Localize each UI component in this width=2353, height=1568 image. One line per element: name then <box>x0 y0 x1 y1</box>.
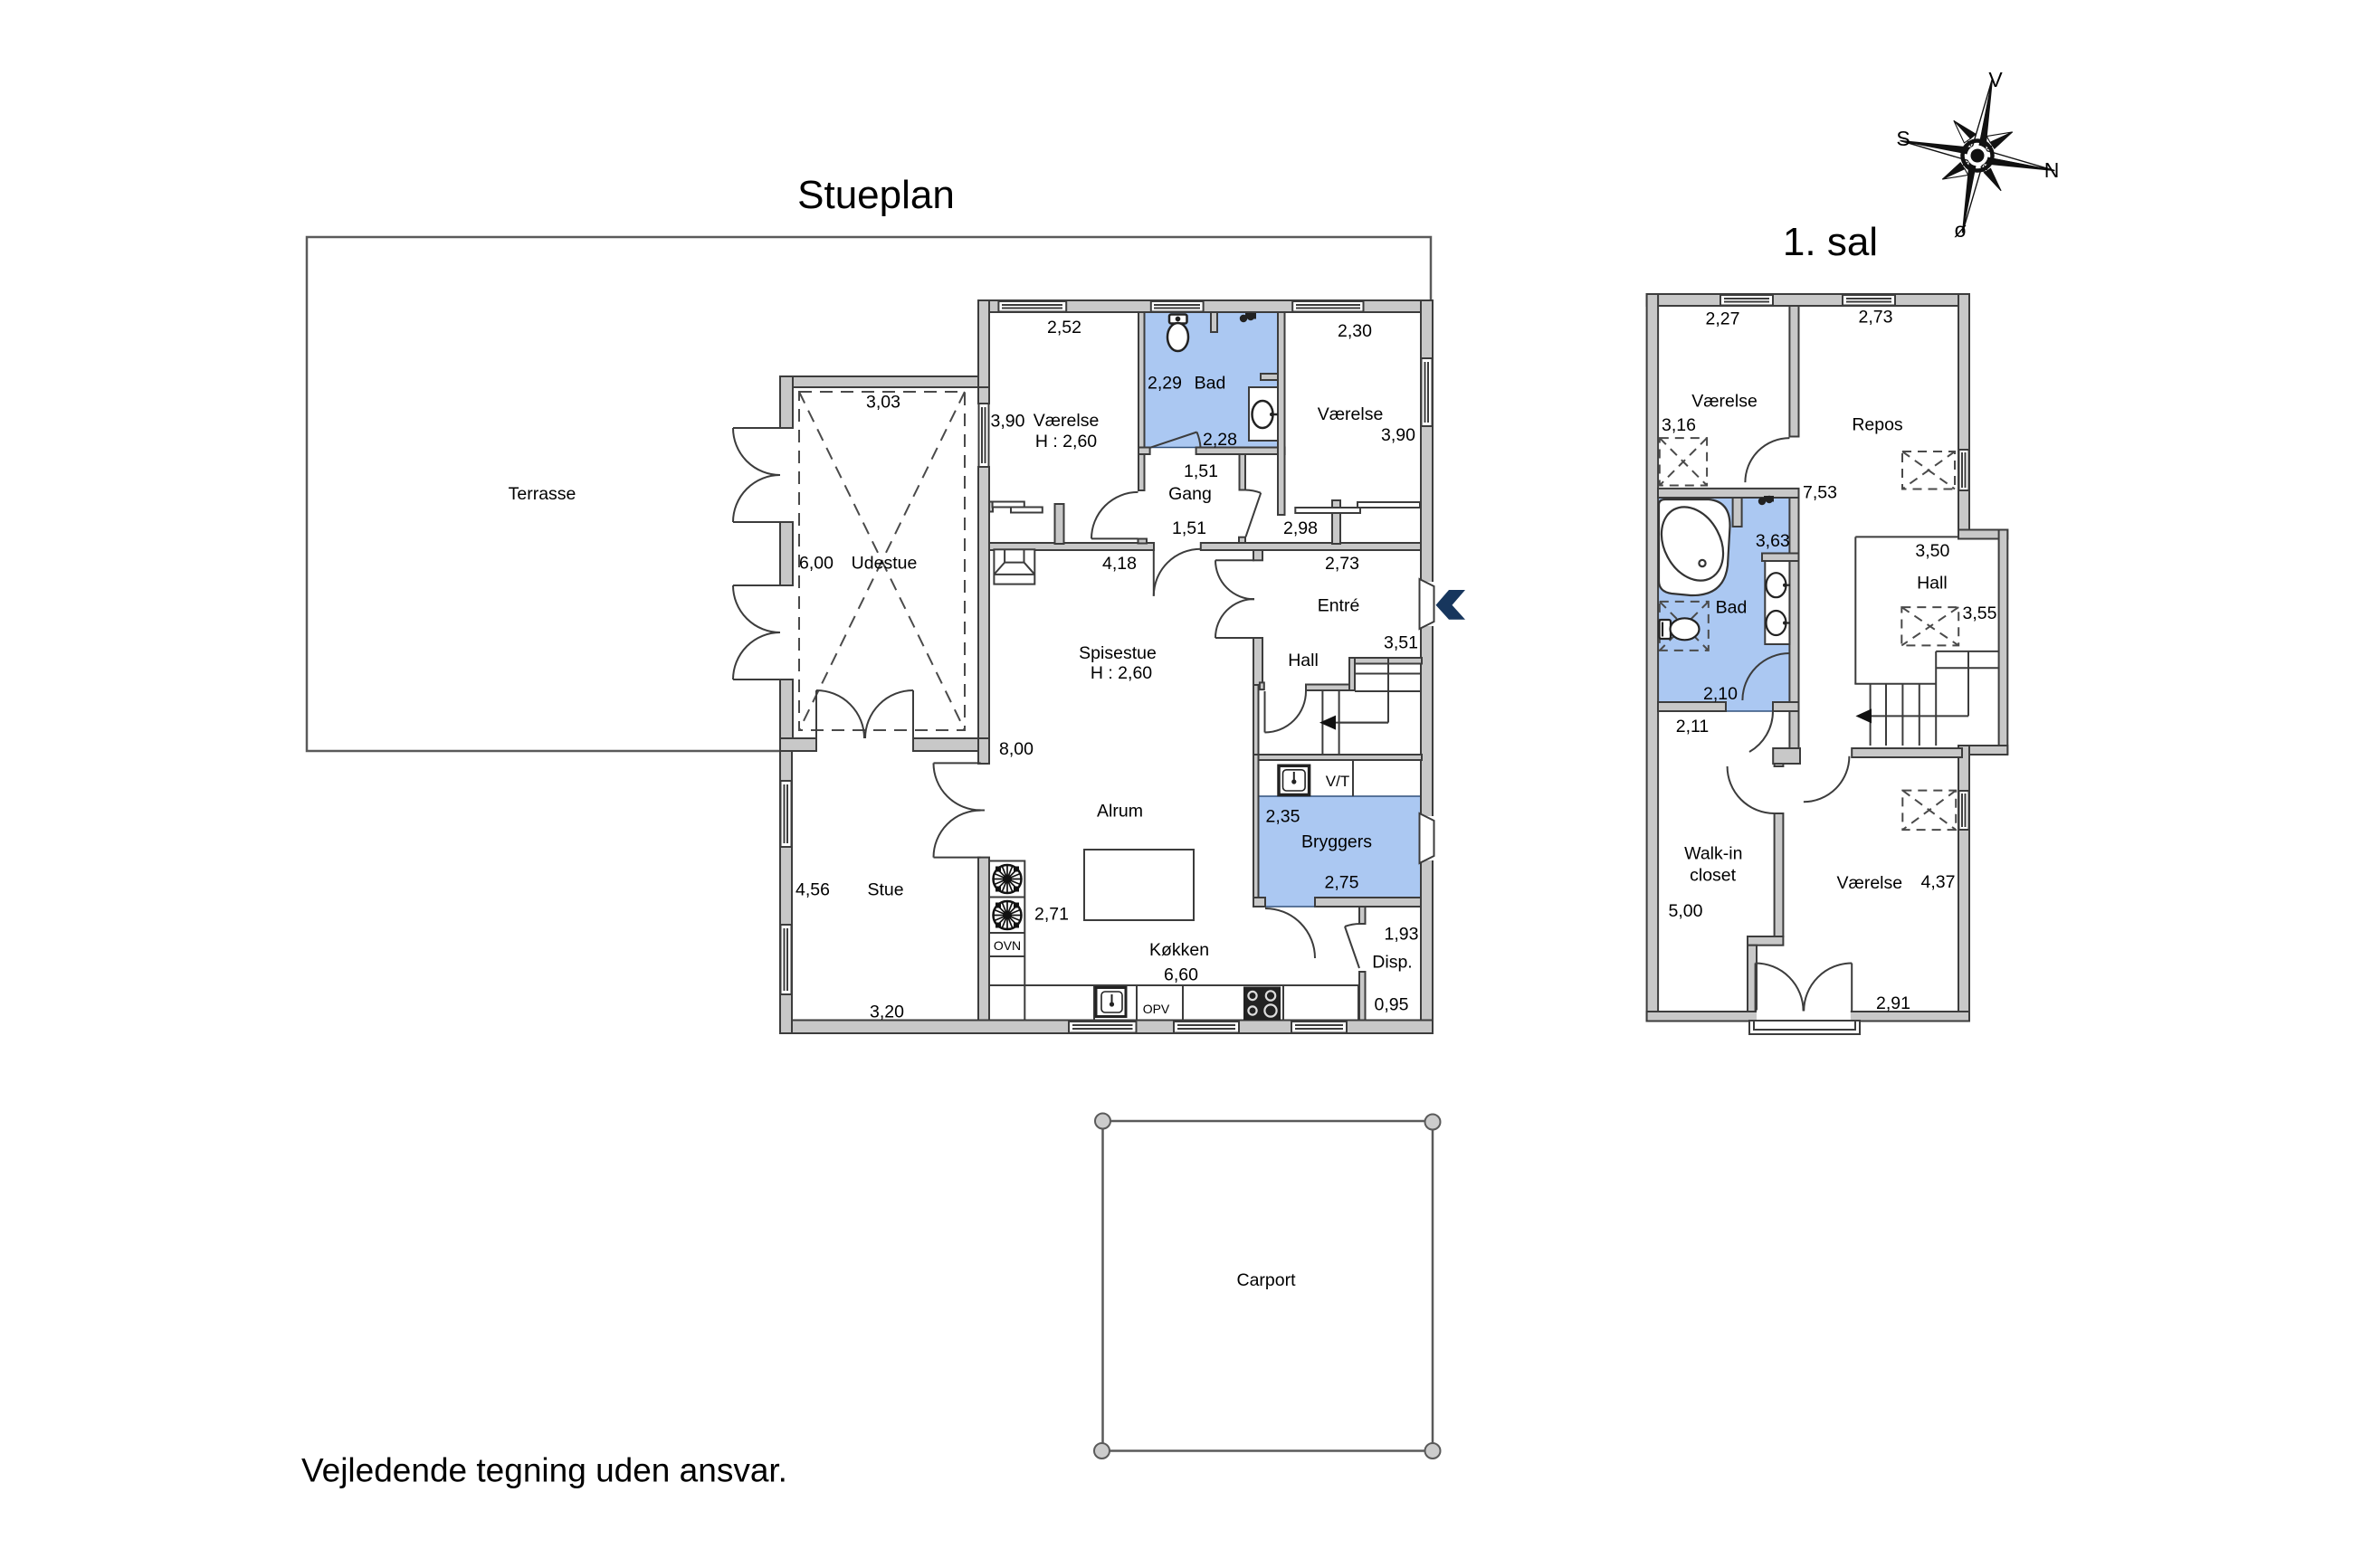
svg-text:Walk-in: Walk-in <box>1684 844 1742 864</box>
svg-text:4,18: 4,18 <box>1102 554 1137 574</box>
svg-text:Stue: Stue <box>867 880 903 900</box>
svg-text:Bad: Bad <box>1716 598 1748 618</box>
svg-text:Værelse: Værelse <box>1691 392 1758 412</box>
svg-text:H : 2,60: H : 2,60 <box>1091 663 1152 683</box>
svg-text:4,56: 4,56 <box>795 880 830 900</box>
svg-text:Vejledende tegning uden ansvar: Vejledende tegning uden ansvar. <box>301 1452 787 1489</box>
svg-text:2,10: 2,10 <box>1703 684 1738 704</box>
svg-text:2,52: 2,52 <box>1047 318 1081 337</box>
svg-text:2,91: 2,91 <box>1876 993 1910 1013</box>
svg-text:6,60: 6,60 <box>1164 965 1198 985</box>
svg-text:3,55: 3,55 <box>1963 603 1997 623</box>
svg-text:Stueplan: Stueplan <box>797 173 955 217</box>
svg-text:2,98: 2,98 <box>1283 518 1318 538</box>
svg-text:2,28: 2,28 <box>1203 430 1237 450</box>
svg-text:2,30: 2,30 <box>1338 321 1372 341</box>
svg-text:3,50: 3,50 <box>1915 541 1949 561</box>
svg-text:1,51: 1,51 <box>1172 518 1206 538</box>
svg-text:H : 2,60: H : 2,60 <box>1035 432 1097 451</box>
svg-text:Værelse: Værelse <box>1034 411 1100 431</box>
svg-text:Bad: Bad <box>1195 374 1226 394</box>
svg-text:2,27: 2,27 <box>1706 309 1740 329</box>
svg-text:1. sal: 1. sal <box>1783 220 1878 264</box>
svg-text:7,53: 7,53 <box>1803 483 1837 503</box>
svg-text:1,93: 1,93 <box>1385 925 1419 945</box>
svg-text:Disp.: Disp. <box>1372 953 1412 973</box>
svg-text:5,00: 5,00 <box>1669 901 1703 921</box>
svg-text:4,37: 4,37 <box>1921 872 1956 892</box>
svg-text:1,51: 1,51 <box>1184 461 1218 481</box>
svg-text:Carport: Carport <box>1236 1270 1296 1290</box>
svg-text:0,95: 0,95 <box>1375 995 1409 1015</box>
svg-text:Gang: Gang <box>1168 484 1212 504</box>
svg-text:Bryggers: Bryggers <box>1301 832 1372 852</box>
svg-text:S: S <box>1896 127 1910 150</box>
svg-text:3,03: 3,03 <box>866 393 900 413</box>
svg-text:Værelse: Værelse <box>1318 404 1384 424</box>
svg-text:N: N <box>2044 158 2060 182</box>
svg-text:2,71: 2,71 <box>1034 905 1069 925</box>
svg-text:3,90: 3,90 <box>991 412 1025 432</box>
svg-text:Repos: Repos <box>1852 415 1903 435</box>
svg-text:3,16: 3,16 <box>1662 415 1696 435</box>
svg-text:3,20: 3,20 <box>870 1003 904 1022</box>
svg-text:3,63: 3,63 <box>1756 531 1790 551</box>
svg-text:OVN: OVN <box>994 938 1021 953</box>
svg-text:ø: ø <box>1954 218 1967 242</box>
svg-text:3,90: 3,90 <box>1381 425 1415 445</box>
svg-text:8,00: 8,00 <box>999 739 1034 759</box>
svg-text:Hall: Hall <box>1288 651 1319 670</box>
svg-text:Terrasse: Terrasse <box>509 484 576 504</box>
svg-text:2,11: 2,11 <box>1676 717 1710 736</box>
svg-text:Alrum: Alrum <box>1097 802 1143 822</box>
svg-text:OPV: OPV <box>1143 1002 1170 1016</box>
svg-text:Spisestue: Spisestue <box>1079 643 1157 663</box>
svg-text:2,73: 2,73 <box>1325 554 1359 574</box>
svg-text:6,00: 6,00 <box>799 554 834 574</box>
svg-text:V/T: V/T <box>1326 773 1349 790</box>
svg-text:2,73: 2,73 <box>1859 308 1893 328</box>
svg-text:Værelse: Værelse <box>1836 873 1902 893</box>
svg-text:3,51: 3,51 <box>1384 633 1418 653</box>
svg-text:Hall: Hall <box>1917 574 1948 594</box>
svg-text:Udestue: Udestue <box>852 554 918 574</box>
svg-text:2,29: 2,29 <box>1148 374 1182 394</box>
svg-text:V: V <box>1988 68 2003 91</box>
svg-text:Entré: Entré <box>1318 596 1360 616</box>
svg-text:2,75: 2,75 <box>1325 873 1359 893</box>
svg-text:closet: closet <box>1690 866 1737 886</box>
svg-text:2,35: 2,35 <box>1266 807 1300 827</box>
svg-text:Køkken: Køkken <box>1149 940 1209 960</box>
